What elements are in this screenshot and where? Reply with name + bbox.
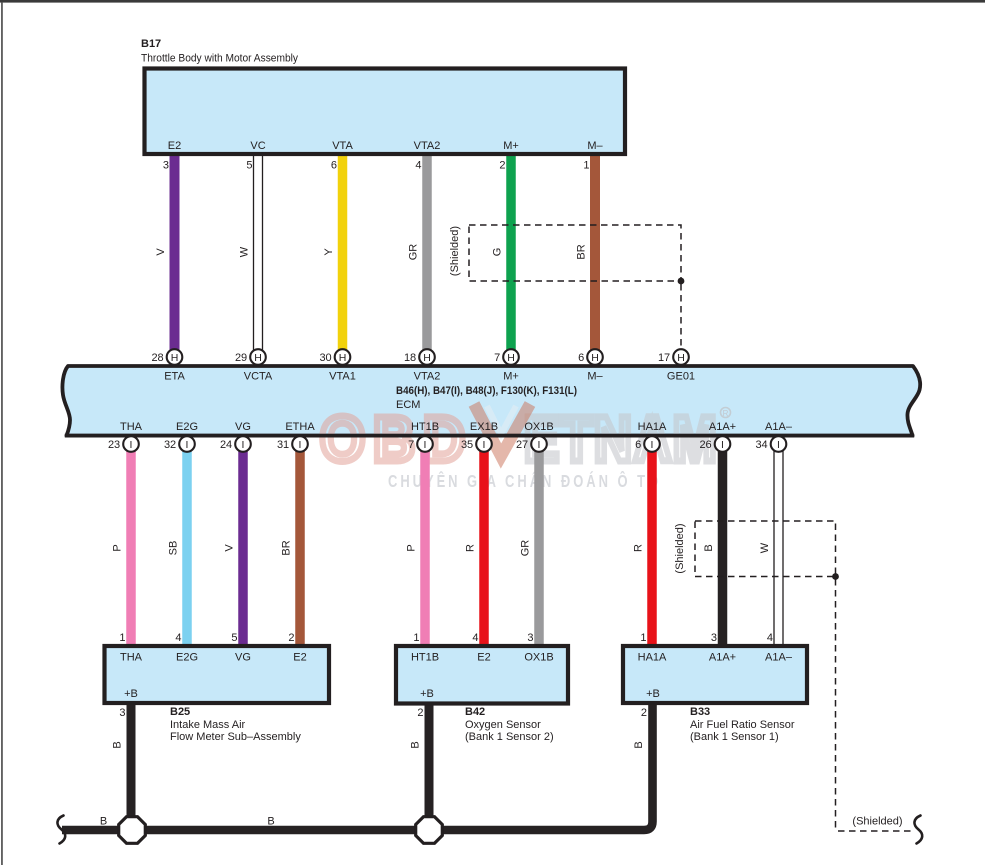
svg-text:18: 18 (404, 352, 416, 364)
svg-text:(Shielded): (Shielded) (449, 226, 461, 276)
svg-text:35: 35 (461, 439, 473, 451)
svg-text:M–: M– (587, 140, 603, 152)
svg-text:B: B (100, 816, 107, 828)
svg-text:Intake Mass Air: Intake Mass Air (170, 719, 246, 731)
svg-text:E2: E2 (293, 652, 306, 664)
svg-text:29: 29 (235, 352, 247, 364)
svg-text:6: 6 (331, 160, 337, 172)
svg-text:V: V (224, 544, 236, 552)
svg-text:B: B (410, 741, 422, 748)
svg-text:B25: B25 (170, 706, 190, 718)
svg-text:I: I (538, 439, 541, 451)
svg-text:H: H (171, 352, 179, 364)
svg-text:1: 1 (413, 632, 419, 644)
svg-text:4: 4 (415, 160, 421, 172)
svg-text:17: 17 (658, 352, 670, 364)
svg-text:+B: +B (646, 688, 660, 700)
svg-text:B: B (703, 544, 715, 551)
svg-text:2: 2 (499, 160, 505, 172)
svg-text:32: 32 (164, 439, 176, 451)
svg-text:4: 4 (472, 632, 478, 644)
svg-text:(Shielded): (Shielded) (674, 523, 686, 573)
svg-text:I: I (777, 439, 780, 451)
svg-text:3: 3 (527, 632, 533, 644)
svg-text:HA1A: HA1A (638, 652, 667, 664)
svg-text:27: 27 (516, 439, 528, 451)
svg-text:1: 1 (640, 632, 646, 644)
svg-text:7: 7 (494, 352, 500, 364)
svg-text:ECM: ECM (396, 399, 420, 411)
svg-text:ETNAM: ETNAM (524, 403, 718, 475)
svg-text:VCTA: VCTA (244, 371, 273, 383)
svg-text:VTA2: VTA2 (414, 140, 441, 152)
svg-text:I: I (483, 439, 486, 451)
svg-text:Throttle Body with Motor Assem: Throttle Body with Motor Assembly (141, 53, 298, 65)
svg-text:V: V (155, 248, 167, 256)
svg-text:B: B (633, 741, 645, 748)
svg-text:EX1B: EX1B (470, 421, 498, 433)
svg-text:OX1B: OX1B (524, 652, 553, 664)
svg-text:H: H (339, 352, 347, 364)
svg-text:HT1B: HT1B (411, 421, 439, 433)
svg-text:H: H (423, 352, 431, 364)
svg-text:GE01: GE01 (667, 371, 695, 383)
svg-text:THA: THA (120, 652, 143, 664)
svg-text:OBD: OBD (320, 403, 473, 475)
svg-text:30: 30 (319, 352, 331, 364)
svg-text:E2G: E2G (176, 421, 198, 433)
svg-text:4: 4 (767, 632, 773, 644)
svg-text:A1A–: A1A– (765, 421, 793, 433)
svg-text:A1A–: A1A– (765, 652, 793, 664)
svg-text:BR: BR (576, 244, 588, 259)
svg-text:H: H (507, 352, 515, 364)
svg-text:R: R (633, 544, 645, 552)
svg-text:(Shielded): (Shielded) (852, 816, 902, 828)
svg-text:2: 2 (417, 707, 423, 719)
svg-text:ETHA: ETHA (285, 421, 315, 433)
svg-text:E2G: E2G (176, 652, 198, 664)
svg-text:THA: THA (120, 421, 143, 433)
svg-text:Y: Y (323, 248, 335, 256)
svg-text:3: 3 (119, 707, 125, 719)
svg-text:24: 24 (220, 439, 232, 451)
svg-text:M–: M– (587, 371, 603, 383)
svg-text:VTA: VTA (332, 140, 353, 152)
svg-text:31: 31 (277, 439, 289, 451)
svg-text:VC: VC (250, 140, 265, 152)
svg-text:H: H (254, 352, 262, 364)
svg-text:M+: M+ (503, 140, 519, 152)
svg-text:I: I (186, 439, 189, 451)
svg-text:5: 5 (246, 160, 252, 172)
svg-text:Flow Meter Sub–Assembly: Flow Meter Sub–Assembly (170, 731, 301, 743)
svg-text:Air Fuel Ratio Sensor: Air Fuel Ratio Sensor (690, 719, 795, 731)
svg-text:ETA: ETA (164, 371, 185, 383)
svg-text:34: 34 (755, 439, 767, 451)
svg-text:2: 2 (641, 707, 647, 719)
svg-text:A1A+: A1A+ (709, 652, 736, 664)
svg-text:+B: +B (420, 688, 434, 700)
svg-text:HT1B: HT1B (411, 652, 439, 664)
svg-text:VG: VG (235, 652, 251, 664)
svg-text:B: B (112, 741, 124, 748)
svg-text:R: R (465, 544, 477, 552)
svg-text:B17: B17 (141, 38, 161, 50)
svg-text:OX1B: OX1B (524, 421, 553, 433)
svg-text:I: I (424, 439, 427, 451)
svg-text:E2: E2 (477, 652, 490, 664)
svg-text:6: 6 (578, 352, 584, 364)
svg-text:B: B (267, 816, 274, 828)
svg-text:G: G (492, 248, 504, 257)
svg-text:R: R (723, 409, 729, 418)
svg-text:3: 3 (711, 632, 717, 644)
svg-text:2: 2 (288, 632, 294, 644)
svg-text:VTA1: VTA1 (329, 371, 356, 383)
svg-text:I: I (721, 439, 724, 451)
svg-text:W: W (239, 246, 251, 257)
svg-text:VG: VG (235, 421, 251, 433)
svg-text:5: 5 (231, 632, 237, 644)
svg-text:6: 6 (635, 439, 641, 451)
svg-text:(Bank 1 Sensor 2): (Bank 1 Sensor 2) (465, 731, 554, 743)
svg-text:B46(H), B47(I), B48(J), F130(K: B46(H), B47(I), B48(J), F130(K), F131(L) (396, 385, 577, 397)
svg-text:H: H (677, 352, 685, 364)
svg-text:GR: GR (520, 540, 532, 557)
svg-text:E2: E2 (168, 140, 181, 152)
svg-text:H: H (591, 352, 599, 364)
svg-text:HA1A: HA1A (638, 421, 667, 433)
svg-text:I: I (299, 439, 302, 451)
svg-text:+B: +B (124, 688, 138, 700)
svg-text:SB: SB (168, 541, 180, 556)
svg-text:7: 7 (408, 439, 414, 451)
svg-text:GR: GR (408, 244, 420, 261)
svg-text:28: 28 (151, 352, 163, 364)
svg-text:VTA2: VTA2 (414, 371, 441, 383)
svg-text:1: 1 (119, 632, 125, 644)
svg-text:A1A+: A1A+ (709, 421, 736, 433)
svg-text:Oxygen Sensor: Oxygen Sensor (465, 719, 541, 731)
svg-text:I: I (130, 439, 133, 451)
svg-text:P: P (112, 544, 124, 551)
svg-text:3: 3 (163, 160, 169, 172)
svg-text:I: I (242, 439, 245, 451)
svg-text:BR: BR (281, 540, 293, 555)
svg-text:(Bank 1 Sensor 1): (Bank 1 Sensor 1) (690, 731, 779, 743)
svg-text:W: W (759, 542, 771, 553)
svg-text:M+: M+ (503, 371, 519, 383)
svg-text:23: 23 (108, 439, 120, 451)
svg-text:I: I (651, 439, 654, 451)
svg-text:1: 1 (583, 160, 589, 172)
svg-text:B33: B33 (690, 706, 710, 718)
svg-text:4: 4 (175, 632, 181, 644)
svg-text:26: 26 (699, 439, 711, 451)
svg-text:B42: B42 (465, 706, 485, 718)
svg-text:P: P (406, 544, 418, 551)
